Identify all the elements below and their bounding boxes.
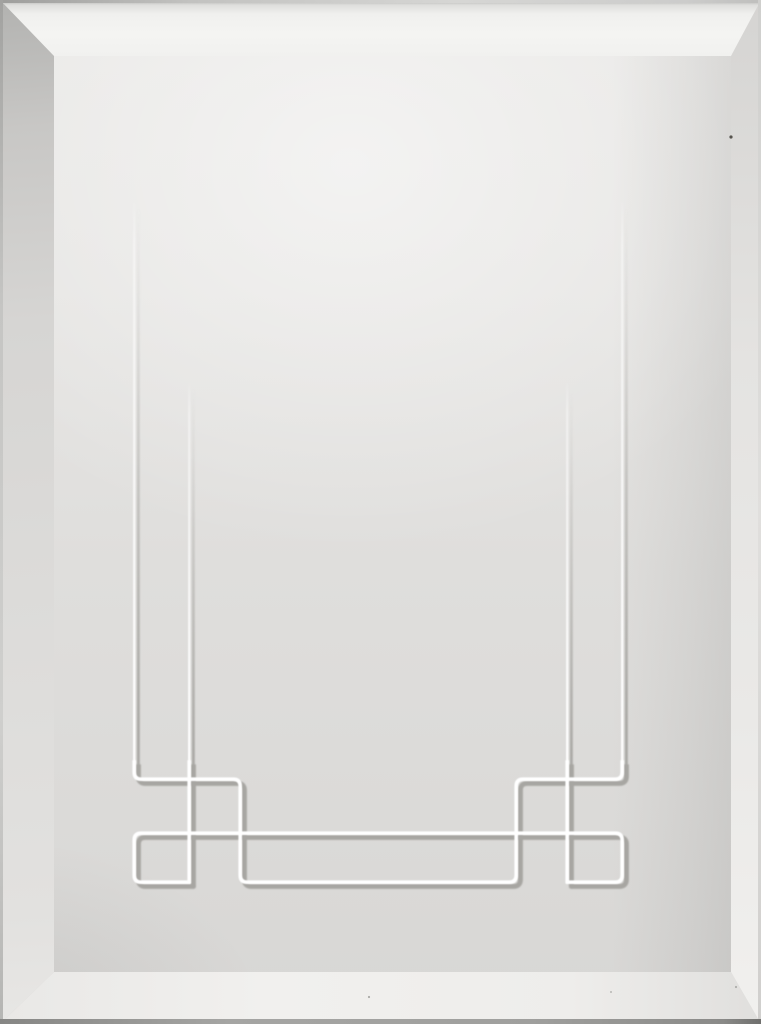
groove-outer-staple bbox=[134, 203, 622, 882]
groove-shadow-pass bbox=[138, 207, 626, 886]
groove-band-with-hooks bbox=[134, 833, 622, 882]
dust-speck bbox=[729, 135, 732, 138]
dust-speck bbox=[610, 991, 612, 993]
groove-outer-staple bbox=[138, 207, 626, 886]
groove-highlight-pass bbox=[134, 203, 622, 882]
dust-speck bbox=[368, 996, 370, 998]
cabinet-door-photo bbox=[0, 0, 761, 1024]
engraved-pattern bbox=[0, 0, 761, 1024]
dust-speck bbox=[735, 986, 737, 988]
groove-band-with-hooks bbox=[138, 837, 626, 886]
